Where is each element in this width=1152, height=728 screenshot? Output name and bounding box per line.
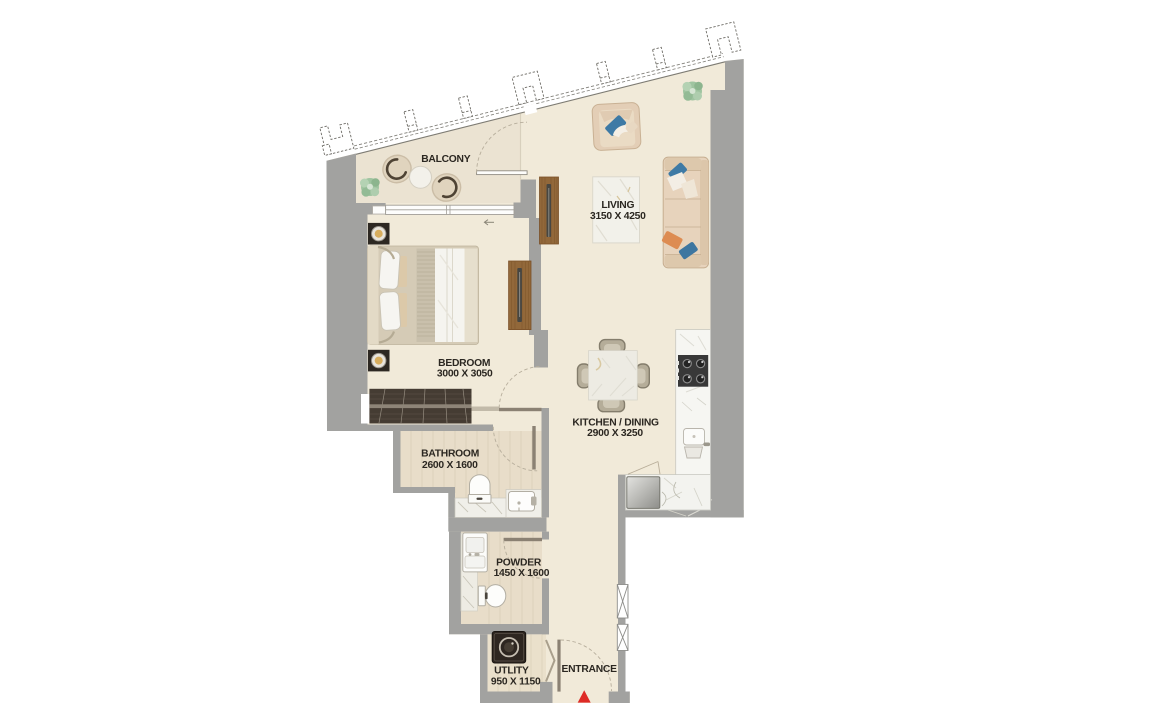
svg-text:LIVING: LIVING [601,200,634,211]
svg-text:UTLITY: UTLITY [494,666,529,677]
svg-text:950 X 1150: 950 X 1150 [491,676,541,687]
svg-text:BEDROOM: BEDROOM [438,358,490,369]
svg-text:3000 X 3050: 3000 X 3050 [437,369,493,380]
svg-text:1450 X 1600: 1450 X 1600 [494,568,550,579]
svg-text:POWDER: POWDER [496,557,542,568]
svg-text:ENTRANCE: ENTRANCE [561,664,617,675]
svg-text:2900 X 3250: 2900 X 3250 [587,428,643,439]
svg-text:BATHROOM: BATHROOM [421,449,479,460]
svg-text:3150 X 4250: 3150 X 4250 [590,211,646,222]
svg-text:2600 X 1600: 2600 X 1600 [422,460,478,471]
svg-text:BALCONY: BALCONY [421,154,471,165]
